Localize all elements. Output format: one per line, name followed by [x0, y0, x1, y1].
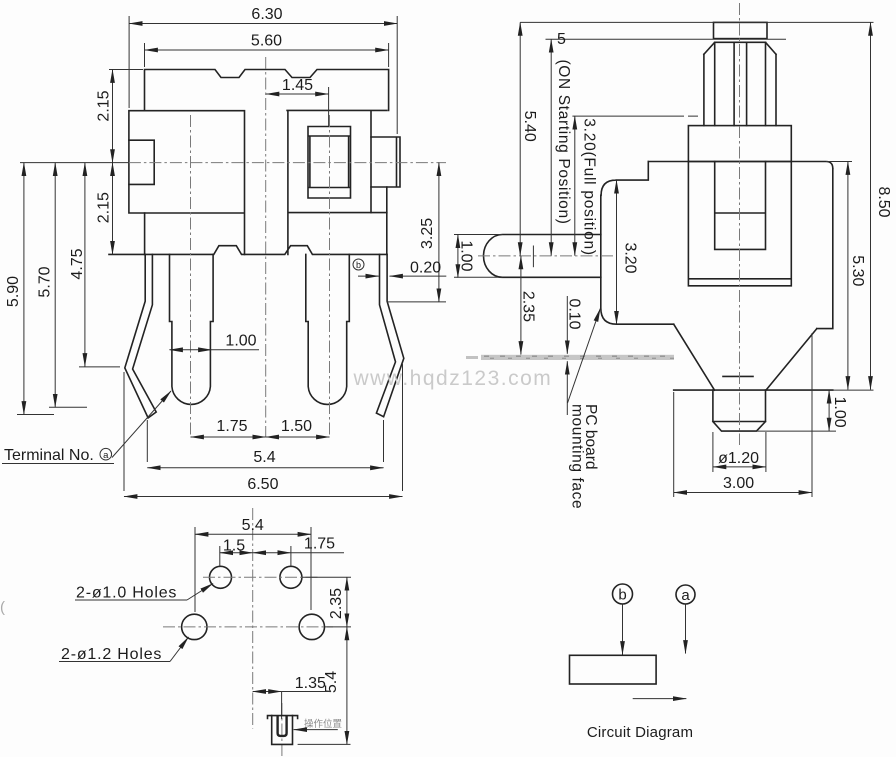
svg-text:www.hqdz123.com: www.hqdz123.com — [353, 367, 553, 390]
svg-text:8.50: 8.50 — [875, 186, 892, 217]
svg-text:0.10: 0.10 — [566, 298, 583, 329]
svg-text:5: 5 — [557, 31, 566, 48]
svg-text:(: ( — [0, 599, 5, 616]
svg-text:(ON Starting Position): (ON Starting Position) — [555, 59, 572, 224]
svg-text:5.4: 5.4 — [253, 449, 275, 466]
svg-text:2.35: 2.35 — [328, 588, 345, 619]
svg-text:1.00: 1.00 — [831, 397, 848, 428]
svg-text:1.5: 1.5 — [223, 538, 245, 555]
svg-text:b: b — [618, 587, 626, 604]
svg-text:Terminal No.: Terminal No. — [4, 447, 94, 464]
svg-text:1.00: 1.00 — [225, 332, 256, 349]
svg-text:2-ø1.0 Holes: 2-ø1.0 Holes — [76, 585, 177, 602]
svg-text:3.25: 3.25 — [419, 218, 436, 249]
svg-text:1.75: 1.75 — [216, 418, 247, 435]
svg-text:5.70: 5.70 — [37, 266, 54, 297]
svg-text:a: a — [103, 450, 109, 461]
svg-text:b: b — [356, 260, 361, 270]
svg-text:5.30: 5.30 — [849, 255, 866, 286]
svg-text:3.00: 3.00 — [723, 475, 754, 492]
svg-text:2-ø1.2 Holes: 2-ø1.2 Holes — [61, 646, 162, 663]
svg-text:3.20: 3.20 — [622, 242, 639, 273]
svg-text:0.20: 0.20 — [410, 260, 441, 277]
svg-text:3.20(Full position): 3.20(Full position) — [581, 118, 598, 255]
svg-text:5.90: 5.90 — [5, 276, 22, 307]
svg-text:5.4: 5.4 — [242, 517, 264, 534]
svg-text:Circuit Diagram: Circuit Diagram — [587, 724, 693, 741]
svg-text:a: a — [681, 587, 690, 604]
svg-text:2.35: 2.35 — [520, 291, 537, 322]
svg-text:操作位置: 操作位置 — [304, 718, 342, 730]
svg-text:1.75: 1.75 — [304, 536, 335, 553]
svg-text:6.50: 6.50 — [247, 476, 278, 493]
svg-text:1.35: 1.35 — [295, 675, 326, 692]
svg-text:mounting face: mounting face — [569, 404, 586, 509]
svg-text:5.40: 5.40 — [521, 111, 538, 142]
svg-text:2.15: 2.15 — [96, 192, 113, 223]
svg-text:1.50: 1.50 — [281, 418, 312, 435]
svg-text:4.75: 4.75 — [69, 248, 86, 279]
svg-text:1.45: 1.45 — [282, 77, 313, 94]
svg-text:2.15: 2.15 — [96, 90, 113, 121]
svg-text:6.30: 6.30 — [251, 6, 282, 23]
svg-text:5.60: 5.60 — [251, 33, 282, 50]
svg-text:1.00: 1.00 — [458, 240, 475, 271]
svg-text:ø1.20: ø1.20 — [718, 450, 759, 467]
